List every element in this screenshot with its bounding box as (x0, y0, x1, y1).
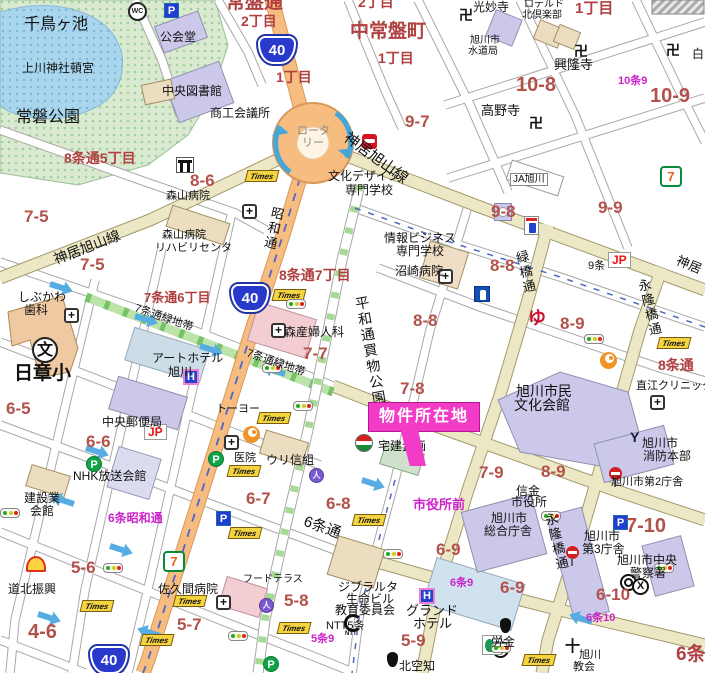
parking-icon: P (164, 3, 179, 18)
traffic-signal-icon (103, 563, 123, 573)
police-label-1: 旭川市中央 (617, 554, 677, 567)
block-7-9: 7-9 (479, 464, 504, 482)
art-hotel-label-2: 旭川 (168, 366, 192, 379)
block-7-10: 7-10 (626, 516, 666, 537)
rokin-label: 労金 (491, 636, 515, 649)
block-7-7: 7-7 (303, 345, 328, 363)
temple-manji-icon: 卍 (574, 44, 588, 58)
times-parking-icon: Times (257, 412, 292, 424)
bank-yu-icon: ゆ (528, 309, 546, 327)
school-label: 日章小 (14, 364, 71, 384)
city-hall-label: 市役所 (511, 496, 547, 509)
fire-hq-label-2: 消防本部 (643, 450, 691, 463)
hospital-icon: + (216, 595, 231, 610)
dohoku-label: 道北振興 (8, 583, 56, 596)
kensetsu-label-2: 会館 (30, 505, 54, 518)
sakuma-hospital-label: 佐久間病院 (158, 583, 218, 596)
grand-hotel-label-2: ホテル (413, 617, 452, 631)
dental-label-1: しぶかわ (18, 291, 66, 304)
block-10-9: 10-9 (650, 86, 690, 107)
chome2-label-a: 2丁目 (241, 14, 277, 29)
fujinka-label: 森産婦人科 (284, 326, 344, 339)
block-6-7: 6-7 (246, 490, 271, 508)
clinic-label: 医院 (234, 453, 256, 465)
pond-label: 千鳥ヶ池 (24, 17, 88, 34)
hotel-roteld-label-2: 北倶楽部 (522, 11, 562, 22)
gas-station-icon (524, 216, 539, 235)
public-hall-label: 公会堂 (160, 31, 196, 44)
church-label-1: 旭川 (579, 650, 601, 662)
uri-shinkumi-label: ウリ信組 (266, 454, 314, 467)
hospital-icon: + (650, 395, 665, 410)
dental-label-2: 歯科 (24, 304, 48, 317)
fire-hq-label-1: 旭川市 (642, 437, 678, 450)
block-4-6: 4-6 (28, 622, 57, 643)
moriyama-hospital-label: 森山病院 (166, 191, 210, 203)
hospital-icon: + (64, 308, 79, 323)
map-canvas[interactable]: 千鳥ヶ池 上川神社頓宮 常磐公園 公会堂 中央図書館 商工会議所 光妙寺 ロテル… (0, 0, 705, 673)
temple-manji-icon: 卍 (529, 116, 543, 130)
traffic-signal-icon (0, 508, 20, 518)
hospital-icon: + (242, 204, 257, 219)
times-parking-icon: Times (277, 622, 312, 634)
dai2-chosha-label: 旭川市第2庁舎 (611, 477, 683, 489)
jo7-6-street-label: 7条通6丁目 (144, 291, 210, 305)
jo8-7-street-label: 8条通7丁目 (279, 268, 351, 283)
times-parking-icon: Times (657, 337, 692, 349)
stop-6jo10-label: 6条10 (586, 613, 615, 625)
seven-eleven-icon: 7 (163, 551, 185, 572)
art-hotel-label-1: アートホテル (152, 352, 223, 365)
jo8-5-street-label: 8条通5丁目 (64, 151, 136, 166)
nhk-label: NHK放送会館 (73, 470, 146, 483)
block-8-9-b: 8-9 (541, 463, 566, 481)
kyoiku-label: 教育委員会 (335, 604, 395, 617)
crosswalk-icon: 人 (259, 598, 274, 613)
rotary-label-2: リー (302, 138, 324, 150)
block-6-6: 6-6 (86, 433, 111, 451)
stop-5jo9-label: 5条9 (311, 634, 334, 646)
haku-label: 白 (692, 48, 704, 61)
church-cross-icon: 十 (565, 639, 580, 654)
joho-school-label-2: 専門学校 (396, 245, 444, 258)
block-7-5-a: 7-5 (24, 208, 49, 226)
traffic-signal-icon (228, 631, 248, 641)
shrine-label: 上川神社頓宮 (22, 62, 94, 75)
traffic-signal-icon (383, 549, 403, 559)
tokiwa-dori-label: 常盤通 (226, 0, 283, 13)
cci-label: 商工会議所 (210, 107, 270, 120)
block-9-9: 9-9 (598, 199, 623, 217)
stop-10jo9-label: 10条9 (618, 76, 647, 88)
sogo-chosha-label-2: 総合庁舎 (484, 525, 532, 538)
times-parking-icon: Times (140, 634, 175, 646)
wc-icon: WC (128, 2, 147, 21)
chome2-label-b: 2丁目 (358, 0, 394, 10)
times-parking-icon: Times (522, 654, 557, 666)
sogo-chosha-label-1: 旭川市 (491, 512, 527, 525)
dai3-chosha-label-1: 旭川市 (584, 530, 620, 543)
church-label-2: 教会 (573, 662, 595, 673)
block-10-8: 10-8 (516, 75, 556, 96)
bus-stop-icon (566, 546, 579, 559)
block-9-7: 9-7 (405, 113, 430, 131)
traffic-signal-icon (293, 401, 313, 411)
chome1-label-b: 1丁目 (276, 70, 312, 85)
kitasorachi-label: 北空知 (399, 660, 435, 673)
police-station-icon: X (632, 578, 649, 595)
toyo-label: トーヨー (216, 404, 260, 416)
seven-eleven-icon: 7 (660, 166, 682, 187)
fire-station-icon: Y (630, 430, 639, 444)
stop-6jo-showa-label: 6条昭和通 (108, 512, 163, 525)
block-5-7: 5-7 (177, 616, 202, 634)
library-label: 中央図書館 (162, 85, 222, 98)
hotel-roteld-label-1: ロテルド (524, 0, 564, 11)
numazaki-label: 沼崎病院 (395, 265, 443, 278)
block-8-6: 8-6 (190, 172, 215, 190)
park-label: 常磐公園 (16, 110, 80, 127)
property-location-callout: 物件所在地 (368, 402, 480, 432)
kensetsu-label-1: 建設業 (24, 492, 60, 505)
route-40-shield: 40 (90, 646, 128, 673)
food-terrace-label: フードテラス (243, 575, 303, 586)
naoe-clinic-label: 直江クリニック (636, 381, 705, 393)
block-6-9-a: 6-9 (436, 541, 461, 559)
times-parking-icon: Times (80, 600, 115, 612)
times-parking-icon: Times (245, 170, 280, 182)
rehab-label-1: 森山病院 (162, 230, 206, 242)
crosswalk-icon: 人 (309, 468, 324, 483)
rotary-label-1: ロータ (297, 126, 330, 138)
times-parking-icon: Times (227, 465, 262, 477)
naka-tokiwa-label: 中常盤町 (350, 22, 426, 42)
ja-asahikawa-label: JA旭川 (510, 173, 548, 187)
takanoji-label: 高野寺 (481, 104, 520, 118)
temple-manji-icon: 卍 (459, 8, 473, 22)
temple-manji-icon: 卍 (666, 43, 680, 57)
parking-icon: P (216, 511, 231, 526)
waterworks-label-2: 水道局 (468, 47, 498, 58)
block-6-5: 6-5 (6, 400, 31, 418)
hospital-icon: + (224, 435, 239, 450)
bunka-kaikan-label-2: 文化会館 (514, 398, 570, 413)
chome1-label-a: 1丁目 (378, 51, 414, 66)
times-parking-icon: Times (352, 514, 387, 526)
traffic-signal-icon (584, 334, 604, 344)
block-5-8: 5-8 (284, 592, 309, 610)
hotel-icon: H (419, 588, 435, 604)
chome1-label-c: 1丁目 (575, 1, 613, 17)
block-8-8-b: 8-8 (490, 257, 515, 275)
stop-shiyakushomae-label: 市役所前 (413, 498, 465, 512)
post-office-icon: JP (608, 252, 631, 268)
block-6-9-b: 6-9 (500, 579, 525, 597)
block-5-6: 5-6 (71, 559, 96, 577)
times-parking-icon: Times (228, 527, 263, 539)
koryuji-label: 興隆寺 (554, 58, 593, 72)
waterworks-label-1: 旭川市 (470, 36, 500, 47)
jo6-label: 6条 (676, 645, 705, 665)
stop-6jo9-label: 6条9 (450, 578, 473, 590)
parking-icon-green: P (208, 451, 224, 467)
times-parking-icon: Times (173, 595, 208, 607)
block-7-5-b: 7-5 (80, 256, 105, 274)
police-label-2: 警察署 (630, 567, 666, 580)
central-post-label: 中央郵便局 (102, 416, 162, 429)
store-swirl-icon (243, 426, 260, 443)
block-8-9-a: 8-9 (560, 315, 585, 333)
traffic-signal-icon (286, 299, 306, 309)
block-7-8: 7-8 (400, 380, 425, 398)
jo8-east-label: 8条通 (658, 358, 694, 373)
school-icon: 文 (32, 337, 58, 363)
takken-company-icon (355, 434, 373, 452)
block-9-8: 9-8 (491, 203, 516, 221)
block-6-10: 6-10 (596, 586, 630, 604)
block-8-8-a: 8-8 (413, 312, 438, 330)
rehab-label-2: リハビリセンタ (155, 243, 232, 255)
komyoji-label: 光妙寺 (473, 1, 509, 14)
parking-icon-green: P (263, 656, 279, 672)
block-5-9: 5-9 (401, 632, 426, 650)
lawson-icon (474, 286, 490, 302)
bank-swirl-icon (600, 352, 617, 369)
block-6-8: 6-8 (326, 495, 351, 513)
jo9-label: 9条 (588, 261, 605, 273)
joho-school-label-1: 情報ビジネス (384, 232, 456, 245)
ntt5jo-label: NTT5条 (326, 621, 365, 633)
design-school-label-2: 専門学校 (345, 184, 393, 197)
